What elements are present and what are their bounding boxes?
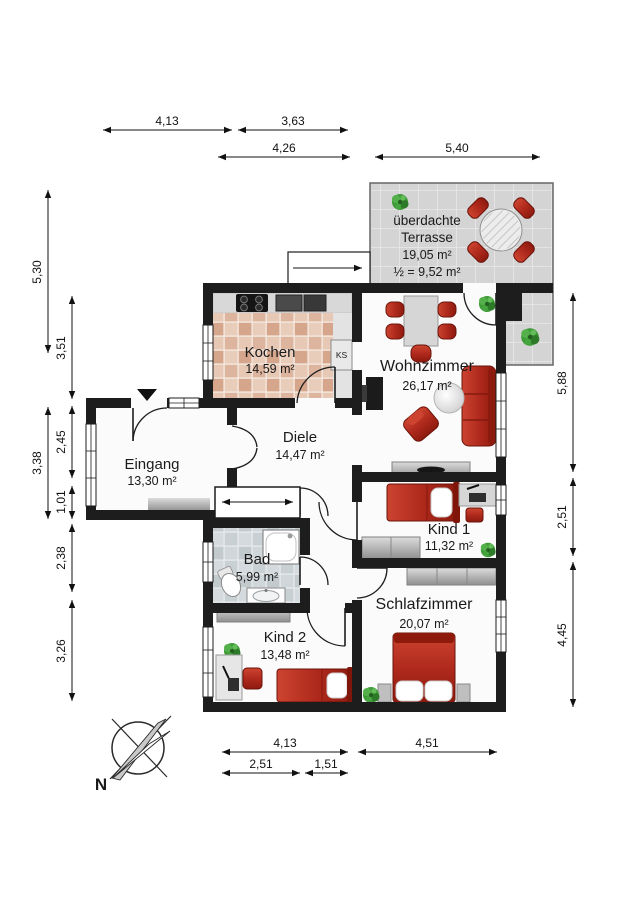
wall [203, 518, 310, 528]
room-label-kind2: Kind 2 [264, 629, 307, 646]
window-kind2-left [203, 627, 213, 697]
dimension-label: 2,51 [249, 757, 273, 771]
tv [366, 377, 383, 410]
pillow [425, 681, 452, 701]
bed-kind1 [387, 482, 460, 523]
wall [352, 540, 362, 558]
window-eingang-top [169, 398, 199, 408]
stool-kind1 [466, 508, 483, 522]
dimension-right-3: 4,45 [555, 562, 573, 707]
room-area-wohnzimmer: 26,17 m² [402, 379, 451, 393]
pillow [431, 488, 452, 517]
room-bad: Bad 5,99 m² [213, 528, 300, 603]
desk-item [228, 678, 239, 691]
dimension-label: 4,51 [415, 736, 439, 750]
dimension-left-1: 5,30 [30, 190, 48, 353]
room-area-eingang: 13,30 m² [127, 474, 176, 488]
dining-chair [386, 302, 404, 317]
room-label-schlafzimmer: Schlafzimmer [376, 596, 474, 613]
doormat [148, 498, 210, 511]
shower-drain [288, 534, 293, 539]
wall [203, 702, 506, 712]
room-area-kind2: 13,48 m² [260, 648, 309, 662]
callout-arrow-box [288, 252, 370, 284]
dimension-label: 5,40 [445, 141, 469, 155]
wall [203, 582, 213, 627]
wall [300, 518, 310, 555]
room-area-kind1: 11,32 m² [425, 539, 473, 553]
kitchen-sink [276, 295, 302, 311]
wall [203, 283, 355, 293]
window-eingang-left [86, 424, 96, 506]
dimension-top-2: 3,63 [238, 114, 348, 130]
dimension-label: 2,38 [54, 546, 68, 570]
dimension-label: 4,26 [272, 141, 296, 155]
wall [352, 370, 362, 415]
compass: N [95, 716, 171, 794]
laptop [469, 493, 486, 502]
window-schlafzimmer-right [496, 600, 506, 652]
dimension-label: 5,88 [555, 371, 569, 395]
room-area-kochen: 14,59 m² [245, 362, 294, 376]
tv-stand [362, 385, 367, 402]
wall [352, 472, 506, 482]
wall [199, 398, 205, 408]
room-area-diele: 14,47 m² [275, 448, 324, 462]
passage-arrow-box [215, 487, 300, 518]
room-label-eingang: Eingang [124, 456, 179, 473]
dimension-left-5: 1,01 [54, 486, 72, 519]
dimension-label: 2,51 [555, 505, 569, 529]
room-label-terrasse-1: überdachte [393, 213, 461, 228]
dining-table [404, 296, 438, 346]
room-area-half-terrasse: ½ = 9,52 m² [393, 265, 460, 279]
dimension-right-1: 5,88 [555, 293, 573, 472]
dimension-right-2: 2,51 [555, 478, 573, 556]
sofa [462, 366, 496, 446]
bed-footboard [394, 633, 454, 643]
floorplan-canvas: überdachte Terrasse 19,05 m² ½ = 9,52 m²… [0, 0, 636, 900]
pillow [327, 673, 347, 698]
nightstand [378, 684, 391, 702]
wall [86, 510, 215, 520]
dimension-left-3: 3,38 [30, 407, 48, 519]
room-area-terrasse: 19,05 m² [402, 248, 451, 262]
dimension-left-6: 2,38 [54, 524, 72, 592]
sofa-backrest [488, 368, 496, 444]
pillow [396, 681, 423, 701]
dimension-label: 5,30 [30, 260, 44, 284]
chair-kind2 [243, 668, 262, 689]
dimension-label: 3,26 [54, 639, 68, 663]
wall [355, 283, 463, 293]
burner-icon [241, 296, 248, 303]
window-bad-left [203, 542, 213, 582]
floorplan-drawing: überdachte Terrasse 19,05 m² ½ = 9,52 m²… [0, 0, 636, 900]
dimension-left-4: 2,45 [54, 406, 72, 478]
apartment: KS Kochen 14,59 m² [86, 283, 553, 712]
dimension-top-1: 4,13 [103, 114, 232, 130]
dimension-top-3: 4,26 [218, 141, 350, 157]
wall [352, 600, 362, 702]
kitchen-sink-drainer [304, 295, 326, 311]
dimension-bottom-4: 1,51 [305, 757, 348, 773]
room-kochen: KS Kochen 14,59 m² [213, 293, 352, 398]
wall [203, 510, 213, 542]
room-label-diele: Diele [283, 429, 317, 446]
wall [345, 603, 362, 613]
room-label-kochen: Kochen [245, 344, 296, 361]
terrace-table-top [482, 211, 521, 250]
wall [496, 515, 506, 600]
room-label-wohnzimmer: Wohnzimmer [380, 358, 475, 375]
wall [203, 398, 295, 408]
faucet-icon [265, 589, 268, 592]
room-label-terrasse-2: Terrasse [401, 230, 453, 245]
room-label-kind1: Kind 1 [428, 521, 471, 538]
dining-chair [438, 324, 456, 339]
wall [86, 398, 96, 424]
dimension-bottom-3: 2,51 [222, 757, 300, 773]
room-label-bad: Bad [244, 551, 271, 568]
dimension-bottom-2: 4,51 [358, 736, 497, 752]
dimension-left-7: 3,26 [54, 600, 72, 701]
washbasin-bowl [253, 591, 279, 602]
wall [203, 697, 213, 712]
room-area-schlafzimmer: 20,07 m² [399, 617, 448, 631]
wall [227, 398, 237, 425]
wall [352, 283, 362, 342]
burner-icon [256, 304, 263, 311]
wall [496, 283, 553, 293]
burner-icon [241, 304, 248, 311]
burner-icon [256, 296, 263, 303]
window-wohnzimmer-right [496, 373, 506, 457]
window-kitchen-left [203, 325, 213, 380]
wall [352, 482, 362, 502]
wall [496, 293, 506, 373]
wardrobe-schlafzimmer [407, 568, 496, 585]
compass-north-label: N [95, 775, 107, 794]
dimension-label: 1,51 [314, 757, 338, 771]
dimension-label: 4,13 [155, 114, 179, 128]
window-kind1-right [496, 485, 506, 515]
dimension-label: 3,51 [54, 336, 68, 360]
dimension-label: 1,01 [54, 490, 68, 514]
nightstand [457, 684, 470, 702]
dimension-label: 3,63 [281, 114, 305, 128]
bed-kind2 [277, 667, 353, 704]
wall [203, 283, 213, 325]
dimension-left-2: 3,51 [54, 296, 72, 399]
fridge-label: KS [336, 350, 348, 360]
wall [352, 558, 506, 568]
dimension-label: 4,13 [273, 736, 297, 750]
dimension-top-4: 5,40 [375, 141, 540, 157]
dining-chair [386, 324, 404, 339]
dimension-bottom-1: 4,13 [222, 736, 348, 752]
wall [203, 603, 305, 613]
washbasin [247, 588, 285, 603]
dimension-label: 3,38 [30, 451, 44, 475]
dimension-label: 4,45 [555, 623, 569, 647]
dining-chair [438, 302, 456, 317]
room-area-bad: 5,99 m² [236, 570, 278, 584]
dimension-label: 2,45 [54, 430, 68, 454]
